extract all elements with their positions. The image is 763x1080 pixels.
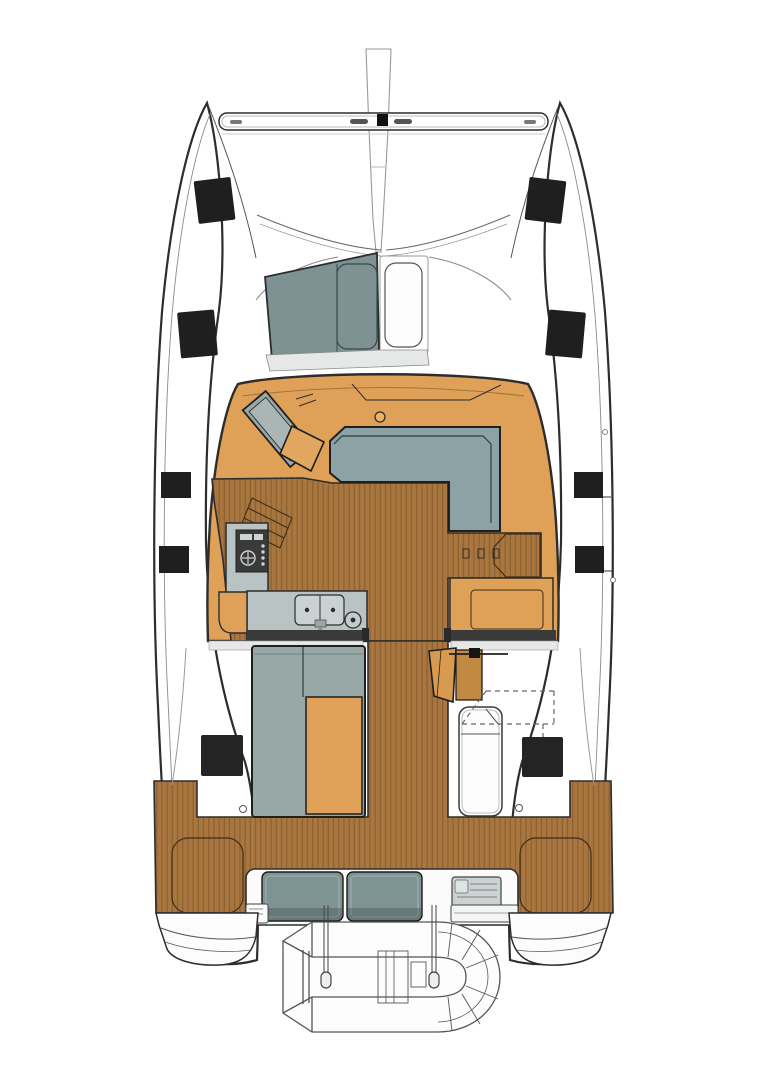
bridgedeck-front-line — [257, 215, 381, 250]
stern-step-box — [451, 905, 518, 922]
cockpit-hatch — [522, 737, 563, 777]
sun-lounger — [459, 707, 502, 816]
davit-block — [429, 972, 439, 988]
stern-bench — [246, 869, 518, 925]
beam-fitting — [350, 119, 368, 124]
forestay-fitting — [377, 114, 388, 126]
bridgedeck-front-line — [386, 215, 510, 250]
cockpit-table — [252, 646, 365, 817]
aft-window-band — [448, 630, 556, 641]
dinghy-hull-outline — [283, 922, 500, 1032]
table-leg-mount — [375, 412, 385, 422]
dinghy — [283, 922, 500, 1032]
deck-fitting — [611, 578, 616, 583]
cabin-front-edge — [429, 257, 511, 300]
beam-fitting — [230, 120, 242, 124]
bridgedeck-front-line — [386, 224, 507, 256]
helm-seat — [429, 648, 508, 702]
deck-fitting — [516, 805, 523, 812]
foredeck-hatch — [524, 177, 566, 224]
starboard-transom — [509, 913, 611, 965]
cockpit-hatch — [201, 735, 243, 776]
sliding-door-post — [362, 628, 369, 642]
windshield-panel — [265, 253, 379, 360]
bridgedeck-front-line — [260, 224, 381, 256]
foredeck-hatch — [177, 309, 218, 358]
port-transom — [156, 913, 258, 965]
faucet — [315, 620, 326, 627]
side-hatch — [161, 472, 191, 498]
stove — [236, 530, 268, 572]
grill-console — [452, 877, 501, 907]
coachroof-front-panel — [380, 256, 428, 353]
deck-fitting — [603, 430, 608, 435]
catamaran-deck-plan — [0, 0, 763, 1080]
beam-fitting — [524, 120, 536, 124]
starboard-cabinet — [450, 578, 553, 634]
bowsprit — [366, 49, 391, 252]
door-sill — [451, 641, 558, 650]
foredeck — [256, 215, 511, 371]
beam-fitting — [394, 119, 412, 124]
boat-floorplan-page — [0, 0, 763, 1080]
galley-end-cabinet — [219, 592, 247, 633]
side-hatch — [159, 546, 189, 573]
side-hatch — [575, 546, 604, 573]
deck-fitting — [240, 806, 247, 813]
aft-window-band — [246, 630, 367, 641]
cockpit-bench-cushion — [306, 697, 362, 814]
davit-block — [321, 972, 331, 988]
bow-rig — [219, 49, 548, 252]
foredeck-hatch — [545, 309, 586, 358]
foredeck-hatch — [194, 177, 236, 224]
sliding-door-post — [444, 628, 451, 642]
helm-fitting — [469, 648, 480, 658]
side-hatch — [574, 472, 603, 498]
